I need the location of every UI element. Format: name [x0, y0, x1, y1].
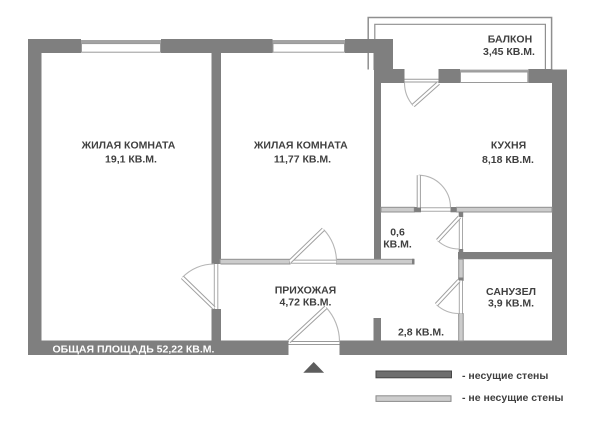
svg-text:2,8 КВ.М.: 2,8 КВ.М.	[398, 327, 444, 339]
svg-text:ЖИЛАЯ КОМНАТА: ЖИЛАЯ КОМНАТА	[81, 140, 176, 152]
svg-text:БАЛКОН: БАЛКОН	[488, 34, 532, 46]
svg-text:19,1 КВ.М.: 19,1 КВ.М.	[105, 154, 157, 166]
svg-text:4,72 КВ.М.: 4,72 КВ.М.	[280, 297, 332, 309]
svg-text:- несущие стены: - несущие стены	[462, 370, 548, 382]
svg-text:САНУЗЕЛ: САНУЗЕЛ	[486, 286, 536, 298]
svg-text:- не несущие стены: - не несущие стены	[462, 392, 563, 404]
svg-text:ЖИЛАЯ КОМНАТА: ЖИЛАЯ КОМНАТА	[253, 140, 348, 152]
svg-text:КВ.М.: КВ.М.	[383, 239, 412, 251]
svg-text:8,18 КВ.М.: 8,18 КВ.М.	[482, 154, 534, 166]
svg-text:ПРИХОЖАЯ: ПРИХОЖАЯ	[275, 285, 336, 297]
svg-text:3,9 КВ.М.: 3,9 КВ.М.	[488, 297, 534, 309]
svg-text:0,6: 0,6	[390, 227, 405, 239]
svg-text:11,77 КВ.М.: 11,77 КВ.М.	[274, 154, 331, 166]
svg-text:ОБЩАЯ ПЛОЩАДЬ 52,22 КВ.М.: ОБЩАЯ ПЛОЩАДЬ 52,22 КВ.М.	[53, 344, 215, 356]
svg-text:КУХНЯ: КУХНЯ	[491, 140, 526, 152]
svg-text:3,45 КВ.М.: 3,45 КВ.М.	[483, 46, 535, 58]
